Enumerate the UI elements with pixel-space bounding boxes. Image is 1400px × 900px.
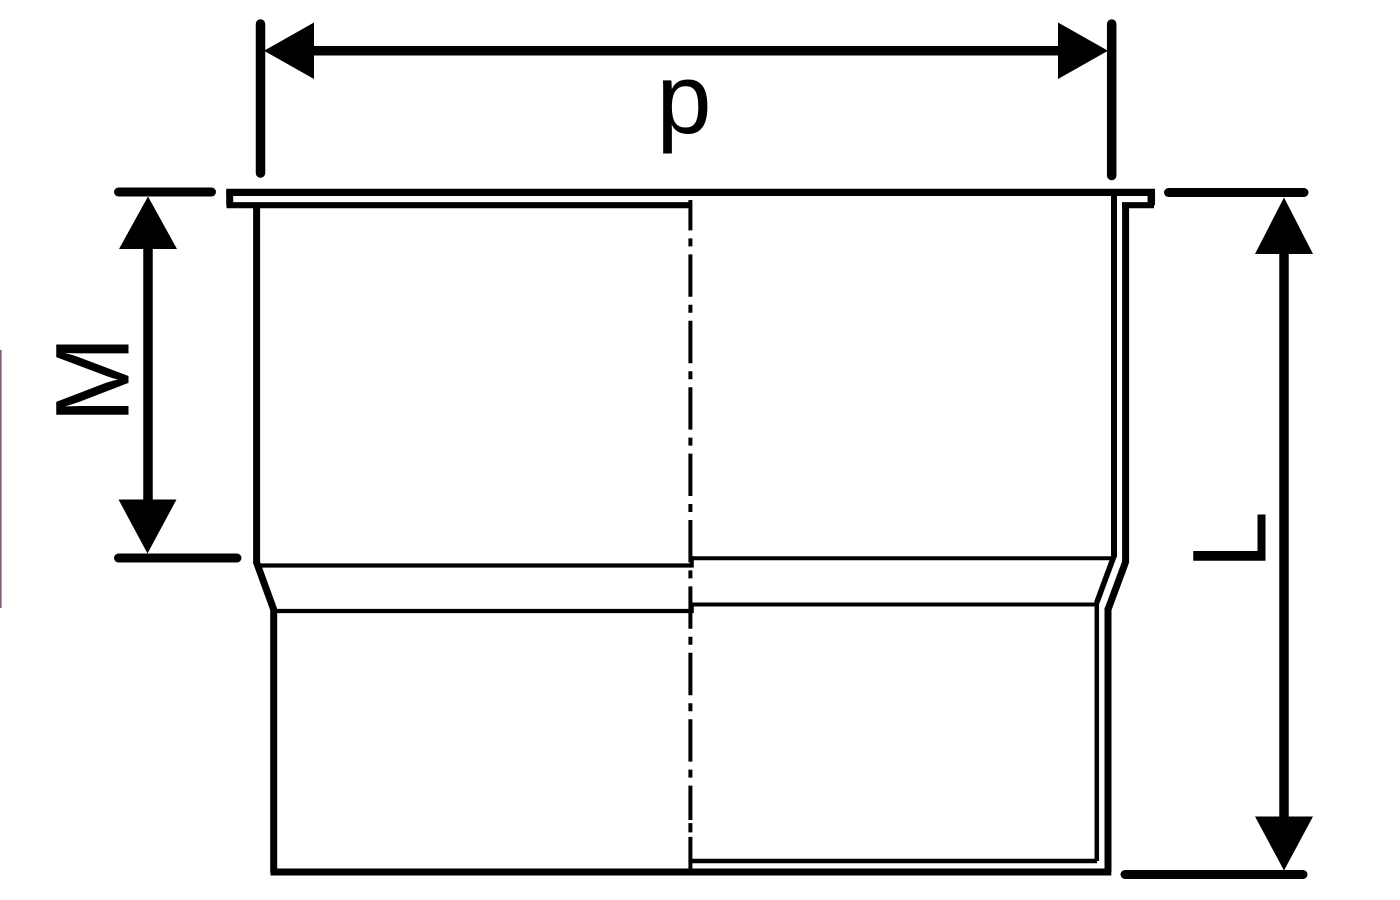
svg-text:L: L	[1172, 511, 1289, 569]
svg-text:M: M	[35, 336, 152, 423]
svg-text:p: p	[656, 43, 711, 154]
